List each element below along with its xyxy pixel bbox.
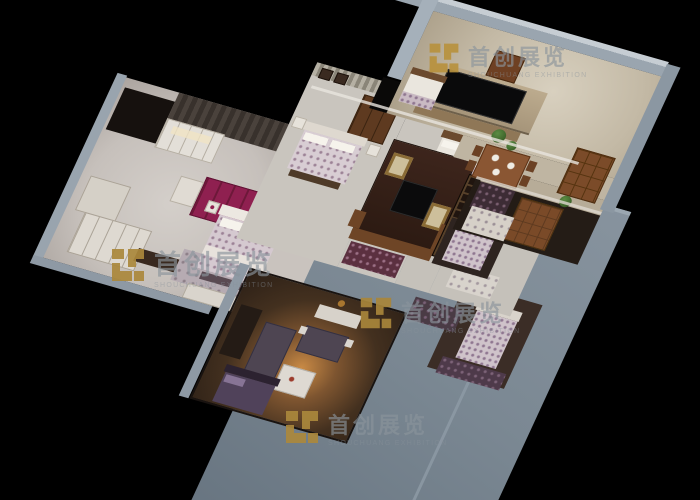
basket: [337, 299, 347, 307]
render-canvas: 首创展览 SHOUCHUANG EXHIBITION 首创展览 SHOUCHUA…: [0, 0, 700, 500]
rug: [406, 297, 464, 333]
console-table: [314, 304, 362, 329]
side-table: [344, 339, 354, 348]
wood-cabinet: [502, 197, 564, 251]
lamp: [210, 205, 216, 210]
